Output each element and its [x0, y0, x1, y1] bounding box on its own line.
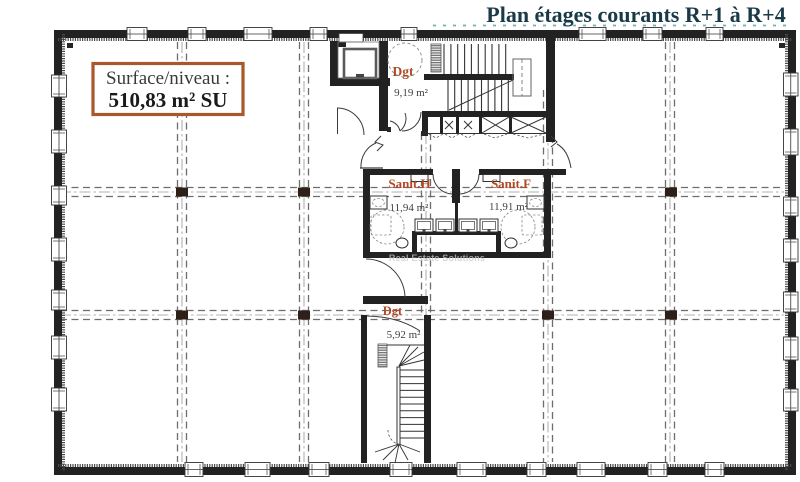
svg-text:Sanit.F: Sanit.F [491, 176, 531, 191]
svg-text:11,94 m²: 11,94 m² [390, 202, 430, 214]
svg-text:Dgt: Dgt [383, 304, 403, 318]
svg-text:11,91 m²: 11,91 m² [489, 201, 529, 213]
svg-text:9,19 m²: 9,19 m² [394, 87, 429, 99]
svg-text:5,92 m²: 5,92 m² [387, 329, 422, 341]
svg-text:510,83 m² SU: 510,83 m² SU [109, 88, 228, 112]
svg-text:Plan étages courants R+1 à R+4: Plan étages courants R+1 à R+4 [486, 2, 785, 27]
svg-text:Surface/niveau :: Surface/niveau : [106, 68, 230, 89]
svg-text:Real Estate Solutions: Real Estate Solutions [389, 253, 485, 263]
svg-text:Sanit.H: Sanit.H [388, 176, 430, 191]
